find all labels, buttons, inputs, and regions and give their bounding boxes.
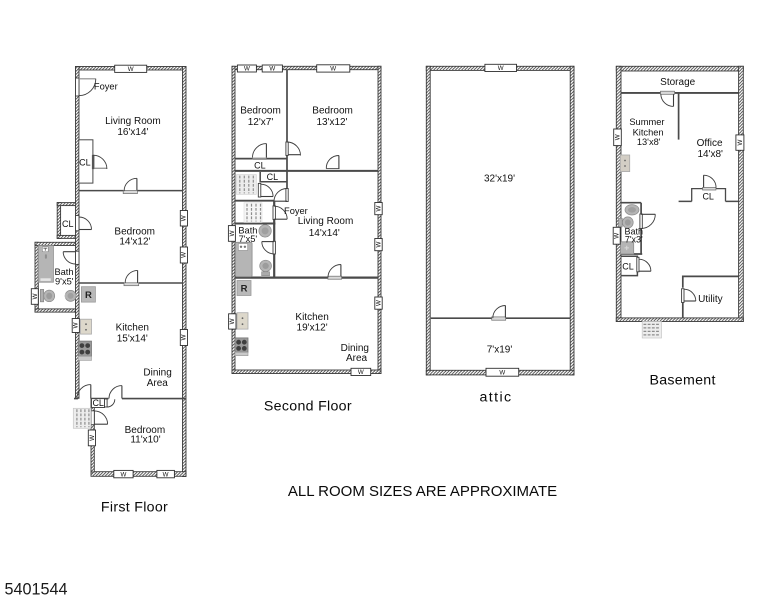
svg-text:19'x12': 19'x12' [297,322,328,333]
svg-text:Basement: Basement [649,373,715,389]
svg-text:W: W [181,215,188,221]
svg-text:15'x14': 15'x14' [117,334,148,345]
svg-text:14'x8': 14'x8' [697,149,723,160]
svg-text:Area: Area [346,353,368,364]
svg-text:W: W [229,318,236,324]
svg-text:14'x14': 14'x14' [309,228,340,239]
svg-text:W: W [358,369,364,376]
svg-text:16'x14': 16'x14' [117,127,148,138]
svg-text:Foyer: Foyer [284,206,308,216]
svg-text:W: W [330,66,336,73]
svg-text:Kitchen: Kitchen [633,127,664,137]
svg-text:W: W [32,293,39,299]
svg-text:CL: CL [62,219,74,229]
svg-text:W: W [120,471,126,478]
svg-text:R: R [85,290,92,301]
svg-text:Living Room: Living Room [105,116,161,127]
svg-text:13'x12': 13'x12' [316,117,347,128]
svg-text:W: W [499,369,505,376]
svg-text:W: W [244,66,250,73]
svg-text:W: W [375,206,382,212]
svg-text:32'x19': 32'x19' [484,173,515,184]
svg-text:W: W [498,65,504,72]
svg-text:Bedroom: Bedroom [240,105,281,116]
svg-text:W: W [163,471,169,478]
svg-text:7'x5': 7'x5' [239,234,258,244]
svg-text:W: W [181,334,188,340]
svg-text:W: W [375,300,382,306]
svg-text:CL: CL [267,172,279,182]
svg-text:W: W [614,233,621,239]
svg-text:Office: Office [697,138,723,149]
svg-text:W: W [375,242,382,248]
svg-text:13'x8': 13'x8' [637,137,661,147]
svg-text:W: W [73,322,80,328]
svg-text:W: W [269,66,275,73]
svg-text:CL: CL [254,161,266,171]
svg-text:W: W [128,66,134,73]
svg-text:CL: CL [702,191,714,201]
svg-text:R: R [241,284,248,295]
svg-text:attic: attic [479,389,512,405]
svg-text:W: W [89,435,96,441]
svg-text:Second Floor: Second Floor [264,398,352,414]
svg-text:12'x7': 12'x7' [248,117,274,128]
svg-text:Bath: Bath [54,267,73,277]
svg-text:CL: CL [622,261,634,271]
svg-text:Storage: Storage [660,77,695,88]
svg-text:Area: Area [147,378,169,389]
svg-text:W: W [181,252,188,258]
svg-text:9'x5': 9'x5' [55,277,74,287]
svg-text:W: W [737,140,744,146]
svg-text:W: W [614,134,621,140]
svg-text:W: W [229,230,236,236]
svg-text:7'x19': 7'x19' [487,344,513,355]
svg-text:First Floor: First Floor [101,500,168,516]
svg-text:5401544: 5401544 [5,581,68,599]
svg-text:Living Room: Living Room [298,216,354,227]
svg-text:ALL ROOM SIZES ARE APPROXIMATE: ALL ROOM SIZES ARE APPROXIMATE [288,483,557,500]
svg-text:7'x3': 7'x3' [625,235,643,245]
svg-text:Kitchen: Kitchen [116,323,149,334]
svg-text:CL: CL [79,157,91,167]
svg-text:11'x10': 11'x10' [130,435,160,446]
svg-text:Utility: Utility [698,294,722,305]
svg-text:14'x12': 14'x12' [119,237,150,248]
svg-text:Bedroom: Bedroom [312,105,353,116]
svg-text:CL: CL [92,398,104,408]
svg-text:Foyer: Foyer [94,81,118,91]
svg-text:Summer: Summer [629,117,664,127]
svg-text:Dining: Dining [143,368,171,379]
